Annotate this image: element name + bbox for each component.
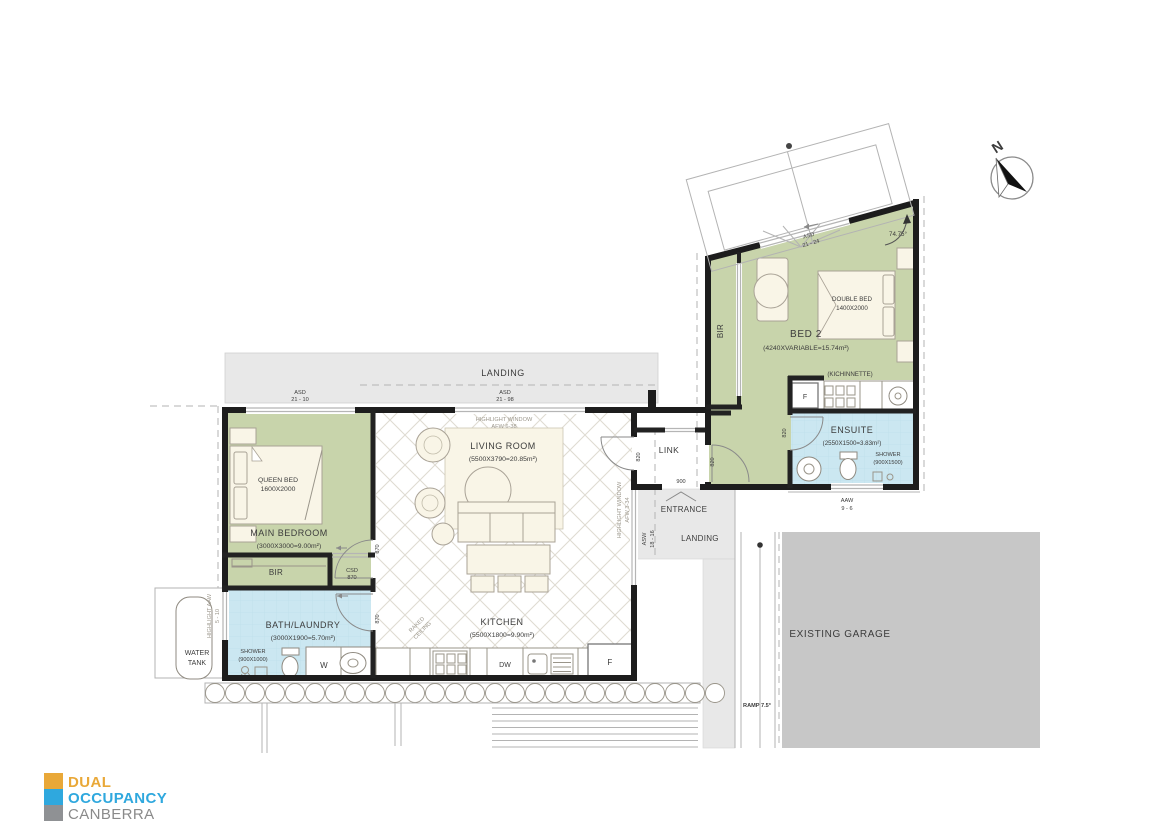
wall-pier [648,390,656,409]
toilet-cistern [282,648,299,655]
logo-square-gray [44,805,63,821]
plant [586,684,605,703]
plant [346,684,365,703]
floor-plan-drawing: N LANDING ASD 21 - 10 ASD 21 - 98 HIGHLI… [0,0,1172,828]
bed2-dims: (4240XVARIABLE=15.74m²) [763,345,849,352]
csd-size: 870 [347,575,356,581]
living-room-label: LIVING ROOM [470,441,536,451]
bed-pillow [883,275,894,304]
aaw-ensuite-label: AAW [841,498,854,504]
aaw-left-size: 5 - 10 [215,609,221,623]
asd-main-label: ASD [294,390,306,396]
bed2-label: BED 2 [790,329,822,340]
bed-pillow [883,307,894,336]
queen-bed-size: 1600X2000 [261,486,296,493]
sofa-cushion [458,513,490,542]
plant [486,684,505,703]
afw-top-label: HIGHLIGHT WINDOW [476,417,533,423]
plant [466,684,485,703]
plant [286,684,305,703]
plant [546,684,565,703]
kitchen-dims: (5500X1800=9.90m²) [470,632,534,639]
kitchenette-label: (KICHINNETTE) [827,371,872,378]
kitchen-label: KITCHEN [480,617,523,627]
landing-top-label: LANDING [481,368,525,378]
setout-dot [786,143,792,149]
plant [326,684,345,703]
entrance-label: ENTRANCE [661,505,707,514]
window-bg [221,592,229,640]
link-label: LINK [659,445,680,455]
plant [606,684,625,703]
double-bed-label: DOUBLE BED [832,296,872,303]
dining-chair [471,576,494,592]
kitchenette-sink [889,387,907,405]
csd-label: CSD [346,568,358,574]
round-table [754,274,788,308]
wall-angle-label: 74.75° [889,231,907,238]
plant-pot [416,428,450,462]
plant [246,684,265,703]
asd-living-size: 21 - 98 [496,397,513,403]
plant [426,684,445,703]
bath-shower-size: (900X1000) [238,657,267,663]
plant-pot [432,523,454,545]
north-label: N [989,137,1006,156]
asd-main-size: 21 - 10 [291,397,308,403]
plant [406,684,425,703]
plant [366,684,385,703]
sofa-cushion [490,513,523,542]
aaw-left-label: HIGHLIGHT AAW [207,593,213,638]
dual-occupancy-canberra-logo: DUAL OCCUPANCY CANBERRA [44,773,167,823]
window-bg [455,406,585,414]
plant [526,684,545,703]
afw-top-size: AFW 6-38 [491,424,516,430]
dining-chair [498,576,521,592]
plant [266,684,285,703]
dishwasher-label: DW [499,662,511,669]
plant [446,684,465,703]
sink-drain [532,659,536,663]
dining-chair [525,576,548,592]
floor-plan-page: N LANDING ASD 21 - 10 ASD 21 - 98 HIGHLI… [0,0,1172,828]
ramp-setout-dot [757,542,763,548]
plant [666,684,685,703]
door-820-label: 820 [710,457,716,466]
washer-label: W [320,661,328,670]
screen-planting-band [205,683,725,703]
logo-text-canberra: CANBERRA [68,806,155,823]
asw-side-label: ASW [642,532,648,545]
landing-top-area [225,353,658,403]
aaw-ensuite-size: 9 - 6 [841,506,852,512]
logo-square-blue [44,789,63,805]
ensuite-shower-label: SHOWER [875,452,900,458]
living-room-dims: (5500X3790=20.85m²) [469,456,537,463]
ensuite-label: ENSUITE [831,425,874,435]
existing-garage-area [782,532,1040,748]
basin [797,457,821,481]
water-tank-label-1: WATER [185,650,210,657]
ramp-label: RAMP 7.5° [743,703,771,709]
bedside-table [230,428,256,444]
bed2-bir-label: BIR [716,324,725,338]
bath-laundry-dims: (3000X1900=5.70m²) [271,635,335,642]
bed-pillow [234,487,247,519]
door-820-label: 820 [782,428,788,437]
sofa-cushion [523,513,555,542]
afw-side-label: HIGHLIGHT WINDOW [617,481,623,538]
kitchen-fridge-label: F [607,658,612,667]
window-bg [246,406,355,414]
kitchen-joinery [376,644,633,678]
ensuite-dims: (2550X1500=3.83m²) [823,440,882,447]
dining-table [467,545,550,574]
bed-pillow [234,452,247,484]
bath-laundry-label: BATH/LAUNDRY [266,620,341,630]
plant-pot [415,488,445,518]
landing-entry-label: LANDING [681,534,719,543]
window-bg [630,490,638,585]
asw-side-size: 18 - 16 [650,530,656,547]
ensuite-shower-size: (900X1500) [873,460,902,466]
toilet-cistern [840,452,857,459]
door-900-label: 900 [676,479,685,485]
window-bg [831,483,883,491]
door-870-label: 870 [375,544,381,553]
laundry-tub [340,653,366,674]
door-820-label: 820 [636,452,642,461]
double-bed-size: 1400X2000 [836,305,868,312]
north-arrow: N [989,137,1033,199]
afw-side-size: AFW 3-34 [625,497,631,522]
main-bedroom-dims: (3000X3000=9.00m²) [257,543,321,550]
plant [566,684,585,703]
existing-garage-label: EXISTING GARAGE [789,629,890,640]
logo-text-occupancy: OCCUPANCY [68,790,167,807]
plant [686,684,705,703]
kitchenette-fridge-label: F [803,394,807,401]
ramp-lines [735,489,779,748]
plant [226,684,245,703]
asd-living-label: ASD [499,390,511,396]
plant [386,684,405,703]
plant [506,684,525,703]
bath-shower-label: SHOWER [240,649,265,655]
queen-bed-label: QUEEN BED [258,477,298,484]
sofa-back [458,502,555,513]
toilet-pan [282,657,298,678]
main-bedroom-label: MAIN BEDROOM [250,528,328,538]
plant [626,684,645,703]
walkway-area [703,559,735,748]
water-tank-label-2: TANK [188,660,206,667]
door-870-label: 870 [375,614,381,623]
bedside-table [897,341,914,362]
logo-square-gold [44,773,63,789]
logo-text-dual: DUAL [68,774,111,791]
bedside-table [897,248,914,269]
plant [206,684,225,703]
bir-label: BIR [269,568,283,577]
deck-boards [262,703,698,753]
plant [646,684,665,703]
plant [306,684,325,703]
toilet-pan [840,459,856,480]
plant [706,684,725,703]
